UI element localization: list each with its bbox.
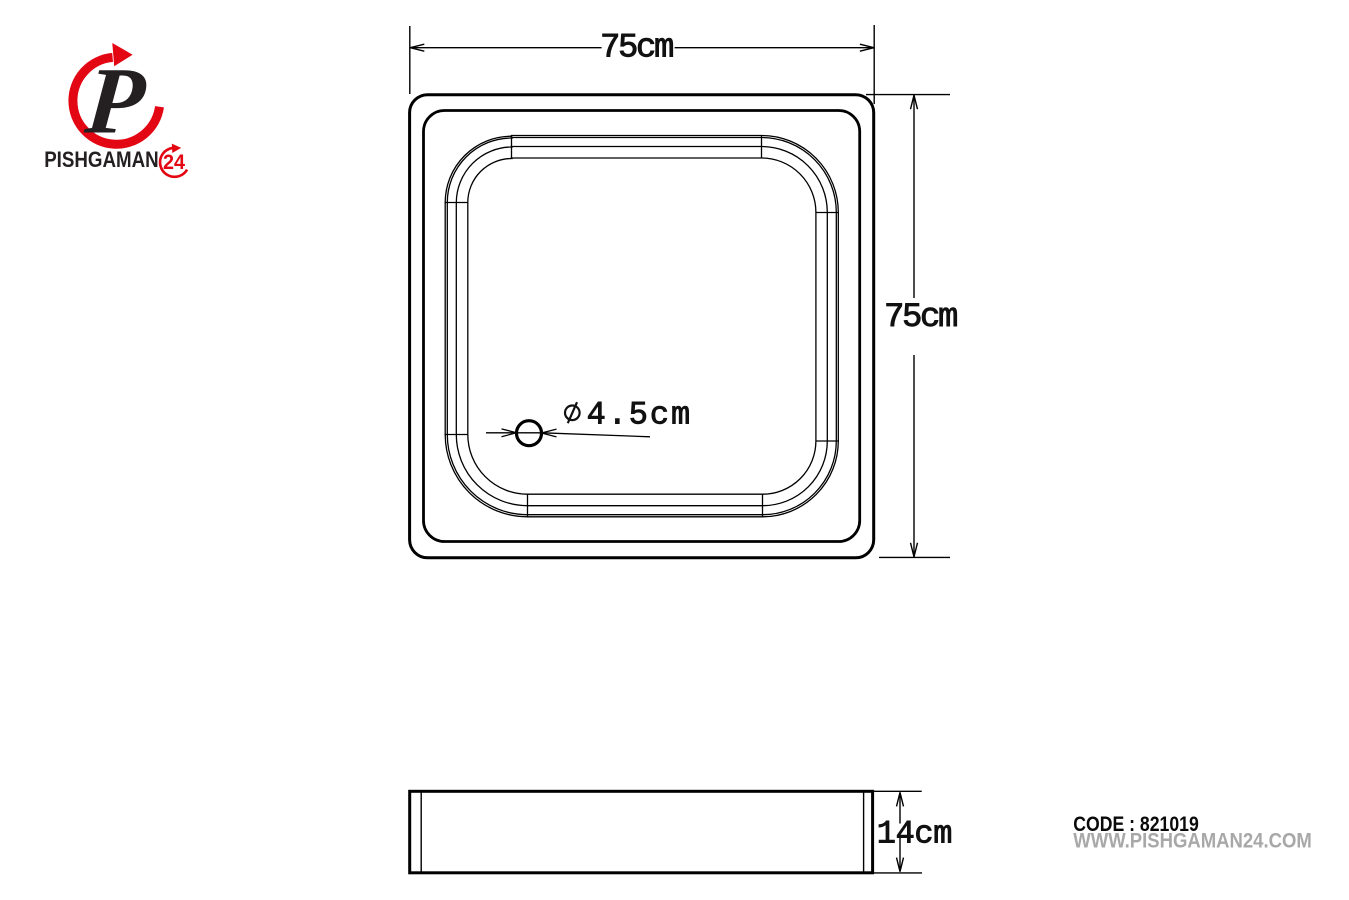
svg-text:24: 24 — [163, 151, 185, 174]
svg-text:75cm: 75cm — [600, 30, 673, 68]
svg-text:WWW.PISHGAMAN24.COM: WWW.PISHGAMAN24.COM — [1073, 830, 1312, 853]
svg-text:75cm: 75cm — [884, 299, 957, 337]
svg-text:4.5cm: 4.5cm — [587, 396, 693, 433]
svg-text:PISHGAMAN: PISHGAMAN — [44, 147, 159, 172]
svg-text:P: P — [81, 48, 150, 154]
svg-text:14cm: 14cm — [877, 816, 952, 853]
